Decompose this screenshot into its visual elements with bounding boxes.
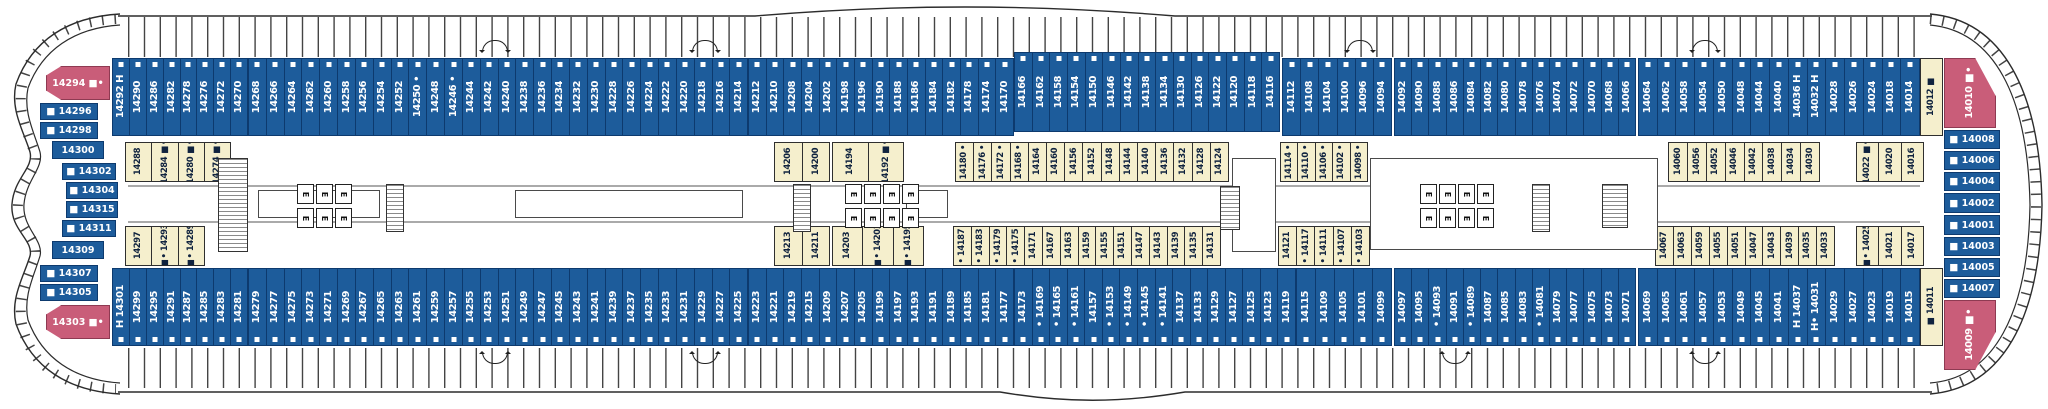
cabin-14238[interactable]: 14238 <box>516 58 534 136</box>
cabin-14273[interactable]: 14273 <box>302 268 320 346</box>
cabin-14007[interactable]: ■ 14007 <box>1944 279 2000 298</box>
cabin-14089[interactable]: • 14089 <box>1464 268 1481 346</box>
cabin-14106[interactable]: 14106 • <box>1316 142 1333 182</box>
cabin-14075[interactable]: 14075 <box>1584 268 1601 346</box>
cabin-14163[interactable]: 14163 <box>1061 226 1079 266</box>
cabin-14121[interactable]: 14121 <box>1278 226 1297 266</box>
cabin-14023[interactable]: 14023 <box>1864 268 1883 346</box>
cabin-14184[interactable]: 14184 <box>926 58 944 136</box>
cabin-14250[interactable]: 14250 • <box>409 58 427 136</box>
cabin-14030[interactable]: 14030 <box>1801 142 1820 182</box>
cabin-14241[interactable]: 14241 <box>588 268 606 346</box>
cabin-14016[interactable]: 14016 <box>1902 142 1924 182</box>
cabin-14001[interactable]: ■ 14001 <box>1944 215 2000 235</box>
cabin-14003[interactable]: ■ 14003 <box>1944 237 2000 256</box>
cabin-14045[interactable]: 14045 <box>1751 268 1770 346</box>
cabin-14034[interactable]: 14034 <box>1782 142 1801 182</box>
cabin-14234[interactable]: 14234 <box>552 58 570 136</box>
cabin-14093[interactable]: • 14093 <box>1429 268 1446 346</box>
cabin-14135[interactable]: 14135 <box>1185 226 1203 266</box>
cabin-14221[interactable]: 14221 <box>767 268 785 346</box>
cabin-14100[interactable]: 14100 <box>1338 58 1356 136</box>
cabin-14249[interactable]: 14249 <box>516 268 534 346</box>
cabin-14078[interactable]: 14078 <box>1516 58 1533 136</box>
cabin-14107[interactable]: • 14107 <box>1334 226 1352 266</box>
cabin-14063[interactable]: 14063 <box>1674 226 1692 266</box>
cabin-14259[interactable]: 14259 <box>427 268 445 346</box>
cabin-14240[interactable]: 14240 <box>499 58 517 136</box>
cabin-14288[interactable]: 14288 <box>125 142 152 182</box>
cabin-14188[interactable]: 14188 <box>890 58 908 136</box>
cabin-14026[interactable]: 14026 <box>1845 58 1864 136</box>
cabin-14299[interactable]: 14299 <box>130 268 147 346</box>
cabin-14099[interactable]: 14099 <box>1373 268 1392 346</box>
cabin-14265[interactable]: 14265 <box>374 268 392 346</box>
cabin-14261[interactable]: 14261 <box>409 268 427 346</box>
cabin-14002[interactable]: ■ 14002 <box>1944 193 2000 213</box>
cabin-14161[interactable]: • 14161 <box>1068 268 1086 346</box>
cabin-14162[interactable]: 14162 <box>1033 52 1051 132</box>
cabin-14270[interactable]: 14270 <box>231 58 248 136</box>
cabin-14137[interactable]: 14137 <box>1173 268 1191 346</box>
cabin-14223[interactable]: 14223 <box>748 268 767 346</box>
cabin-14285[interactable]: 14285 <box>197 268 214 346</box>
cabin-14213[interactable]: 14213 <box>774 226 803 266</box>
cabin-14095[interactable]: 14095 <box>1412 268 1429 346</box>
cabin-14085[interactable]: 14085 <box>1498 268 1515 346</box>
cabin-14145[interactable]: • 14145 <box>1138 268 1156 346</box>
cabin-14248[interactable]: 14248 <box>427 58 445 136</box>
cabin-14247[interactable]: 14247 <box>534 268 552 346</box>
cabin-14260[interactable]: 14260 <box>320 58 338 136</box>
cabin-14091[interactable]: 14091 <box>1447 268 1464 346</box>
cabin-14118[interactable]: 14118 <box>1245 52 1263 132</box>
cabin-14212[interactable]: 14212 <box>748 58 767 136</box>
cabin-14224[interactable]: 14224 <box>641 58 659 136</box>
cabin-14151[interactable]: 14151 <box>1114 226 1132 266</box>
cabin-14059[interactable]: 14059 <box>1692 226 1710 266</box>
cabin-14105[interactable]: 14105 <box>1335 268 1354 346</box>
cabin-14021[interactable]: 14021 <box>1879 226 1901 266</box>
cabin-14018[interactable]: 14018 <box>1883 58 1902 136</box>
cabin-14203[interactable]: 14203 <box>832 226 863 266</box>
cabin-14051[interactable]: 14051 <box>1728 226 1746 266</box>
cabin-14036[interactable]: 14036 H <box>1789 58 1808 136</box>
cabin-14077[interactable]: 14077 <box>1567 268 1584 346</box>
cabin-14039[interactable]: 14039 <box>1781 226 1799 266</box>
cabin-14276[interactable]: 14276 <box>197 58 214 136</box>
cabin-14267[interactable]: 14267 <box>356 268 374 346</box>
cabin-14229[interactable]: 14229 <box>695 268 713 346</box>
cabin-14197[interactable]: 14197 <box>890 268 908 346</box>
cabin-14286[interactable]: 14286 <box>147 58 164 136</box>
cabin-14275[interactable]: 14275 <box>285 268 303 346</box>
cabin-14112[interactable]: 14112 <box>1282 58 1301 136</box>
cabin-14303[interactable]: 14303 ■• <box>46 305 110 339</box>
cabin-14220[interactable]: 14220 <box>677 58 695 136</box>
cabin-14038[interactable]: 14038 <box>1763 142 1782 182</box>
cabin-14190[interactable]: 14190 <box>873 58 891 136</box>
cabin-14254[interactable]: 14254 <box>374 58 392 136</box>
cabin-14236[interactable]: 14236 <box>534 58 552 136</box>
cabin-14153[interactable]: • 14153 <box>1103 268 1121 346</box>
cabin-14186[interactable]: 14186 <box>908 58 926 136</box>
cabin-14131[interactable]: 14131 <box>1203 226 1221 266</box>
cabin-14114[interactable]: 14114 • <box>1280 142 1298 182</box>
cabin-14008[interactable]: ■ 14008 <box>1944 130 2000 149</box>
cabin-14315[interactable]: ■ 14315 <box>66 201 118 218</box>
cabin-14244[interactable]: 14244 <box>463 58 481 136</box>
cabin-14159[interactable]: 14159 <box>1079 226 1097 266</box>
cabin-14207[interactable]: 14207 <box>837 268 855 346</box>
cabin-14263[interactable]: 14263 <box>392 268 410 346</box>
cabin-14252[interactable]: 14252 <box>392 58 410 136</box>
cabin-14090[interactable]: 14090 <box>1412 58 1429 136</box>
cabin-14048[interactable]: 14048 <box>1733 58 1752 136</box>
cabin-14264[interactable]: 14264 <box>285 58 303 136</box>
cabin-14160[interactable]: 14160 <box>1047 142 1065 182</box>
cabin-14191[interactable]: 14191 <box>926 268 944 346</box>
cabin-14283[interactable]: 14283 <box>214 268 231 346</box>
cabin-14134[interactable]: 14134 <box>1156 52 1174 132</box>
cabin-14076[interactable]: 14076 <box>1533 58 1550 136</box>
cabin-14293[interactable]: ■• 14293 <box>152 226 178 266</box>
cabin-14049[interactable]: 14049 <box>1733 268 1752 346</box>
cabin-14083[interactable]: 14083 <box>1516 268 1533 346</box>
cabin-14139[interactable]: 14139 <box>1168 226 1186 266</box>
cabin-14012[interactable]: 14012 ■ <box>1920 58 1943 136</box>
cabin-14296[interactable]: ■ 14296 <box>40 103 98 120</box>
cabin-14219[interactable]: 14219 <box>784 268 802 346</box>
cabin-14143[interactable]: 14143 <box>1150 226 1168 266</box>
cabin-14061[interactable]: 14061 <box>1676 268 1695 346</box>
cabin-14060[interactable]: 14060 <box>1668 142 1688 182</box>
cabin-14176[interactable]: 14176 • <box>974 142 992 182</box>
cabin-14101[interactable]: 14101 <box>1354 268 1373 346</box>
cabin-14269[interactable]: 14269 <box>338 268 356 346</box>
cabin-14108[interactable]: 14108 <box>1301 58 1319 136</box>
cabin-14258[interactable]: 14258 <box>338 58 356 136</box>
cabin-14232[interactable]: 14232 <box>570 58 588 136</box>
cabin-14116[interactable]: 14116 <box>1262 52 1280 132</box>
cabin-14111[interactable]: • 14111 <box>1315 226 1333 266</box>
cabin-14123[interactable]: 14123 <box>1261 268 1279 346</box>
cabin-14158[interactable]: 14158 <box>1050 52 1068 132</box>
cabin-14225[interactable]: 14225 <box>730 268 748 346</box>
cabin-14117[interactable]: • 14117 <box>1297 226 1315 266</box>
cabin-14136[interactable]: 14136 <box>1156 142 1174 182</box>
cabin-14277[interactable]: 14277 <box>267 268 285 346</box>
cabin-14205[interactable]: 14205 <box>855 268 873 346</box>
cabin-14222[interactable]: 14222 <box>659 58 677 136</box>
cabin-14246[interactable]: 14246 • <box>445 58 463 136</box>
cabin-14280[interactable]: 14280 ■• <box>179 142 205 182</box>
cabin-14092[interactable]: 14092 <box>1394 58 1412 136</box>
cabin-14065[interactable]: 14065 <box>1658 268 1677 346</box>
cabin-14230[interactable]: 14230 <box>588 58 606 136</box>
cabin-14289[interactable]: ■• 14289 <box>179 226 205 266</box>
cabin-14130[interactable]: 14130 <box>1174 52 1192 132</box>
cabin-14257[interactable]: 14257 <box>445 268 463 346</box>
cabin-14047[interactable]: 14047 <box>1746 226 1764 266</box>
cabin-14133[interactable]: 14133 <box>1191 268 1209 346</box>
cabin-14125[interactable]: 14125 <box>1243 268 1261 346</box>
cabin-14035[interactable]: 14035 <box>1799 226 1817 266</box>
cabin-14200[interactable]: 14200 <box>803 142 831 182</box>
cabin-14235[interactable]: 14235 <box>641 268 659 346</box>
cabin-14152[interactable]: 14152 <box>1083 142 1101 182</box>
cabin-14126[interactable]: 14126 <box>1192 52 1210 132</box>
cabin-14120[interactable]: 14120 <box>1227 52 1245 132</box>
cabin-14098[interactable]: 14098 • <box>1351 142 1368 182</box>
cabin-14070[interactable]: 14070 <box>1584 58 1601 136</box>
cabin-14211[interactable]: 14211 <box>803 226 831 266</box>
cabin-14271[interactable]: 14271 <box>320 268 338 346</box>
cabin-14166[interactable]: 14166 <box>1014 52 1033 132</box>
cabin-14242[interactable]: 14242 <box>481 58 499 136</box>
cabin-14064[interactable]: 14064 <box>1638 58 1658 136</box>
cabin-14029[interactable]: 14029 <box>1826 268 1845 346</box>
cabin-14253[interactable]: 14253 <box>481 268 499 346</box>
cabin-14031[interactable]: H• 14031 <box>1808 268 1827 346</box>
cabin-14044[interactable]: 14044 <box>1751 58 1770 136</box>
cabin-14282[interactable]: 14282 <box>164 58 181 136</box>
cabin-14255[interactable]: 14255 <box>463 268 481 346</box>
cabin-14062[interactable]: 14062 <box>1658 58 1677 136</box>
cabin-14037[interactable]: H 14037 <box>1789 268 1808 346</box>
cabin-14080[interactable]: 14080 <box>1498 58 1515 136</box>
cabin-14055[interactable]: 14055 <box>1710 226 1728 266</box>
cabin-14167[interactable]: 14167 <box>1043 226 1061 266</box>
cabin-14017[interactable]: 14017 <box>1902 226 1924 266</box>
cabin-14192[interactable]: 14192 ■• <box>869 142 905 182</box>
cabin-14301[interactable]: H 14301 <box>112 268 130 346</box>
cabin-14201[interactable]: ■• 14201 <box>863 226 893 266</box>
cabin-14226[interactable]: 14226 <box>623 58 641 136</box>
cabin-14028[interactable]: 14028 <box>1826 58 1845 136</box>
cabin-14294[interactable]: 14294 ■• <box>46 66 110 100</box>
cabin-14291[interactable]: 14291 <box>164 268 181 346</box>
cabin-14215[interactable]: 14215 <box>802 268 820 346</box>
cabin-14104[interactable]: 14104 <box>1319 58 1337 136</box>
cabin-14103[interactable]: • 14103 <box>1352 226 1370 266</box>
cabin-14119[interactable]: 14119 <box>1278 268 1296 346</box>
cabin-14284[interactable]: 14284 ■• <box>152 142 178 182</box>
cabin-14216[interactable]: 14216 <box>713 58 731 136</box>
cabin-14206[interactable]: 14206 <box>774 142 803 182</box>
cabin-14172[interactable]: 14172 • <box>992 142 1010 182</box>
cabin-14218[interactable]: 14218 <box>695 58 713 136</box>
cabin-14084[interactable]: 14084 <box>1464 58 1481 136</box>
cabin-14278[interactable]: 14278 <box>181 58 198 136</box>
cabin-14054[interactable]: 14054 <box>1695 58 1714 136</box>
cabin-14032[interactable]: 14032 H <box>1808 58 1827 136</box>
cabin-14138[interactable]: 14138 <box>1139 52 1157 132</box>
cabin-14181[interactable]: 14181 <box>979 268 997 346</box>
cabin-14302[interactable]: ■ 14302 <box>62 163 116 180</box>
cabin-14102[interactable]: 14102 • <box>1333 142 1350 182</box>
cabin-14027[interactable]: 14027 <box>1845 268 1864 346</box>
cabin-14228[interactable]: 14228 <box>606 58 624 136</box>
cabin-14087[interactable]: 14087 <box>1481 268 1498 346</box>
cabin-14227[interactable]: 14227 <box>713 268 731 346</box>
cabin-14046[interactable]: 14046 <box>1726 142 1745 182</box>
cabin-14057[interactable]: 14057 <box>1695 268 1714 346</box>
cabin-14231[interactable]: 14231 <box>677 268 695 346</box>
cabin-14195[interactable]: ■• 14195 <box>894 226 924 266</box>
cabin-14043[interactable]: 14043 <box>1763 226 1781 266</box>
cabin-14173[interactable]: 14173 <box>1014 268 1033 346</box>
cabin-14266[interactable]: 14266 <box>267 58 285 136</box>
cabin-14279[interactable]: 14279 <box>248 268 267 346</box>
cabin-14297[interactable]: 14297 <box>125 226 152 266</box>
cabin-14144[interactable]: 14144 <box>1120 142 1138 182</box>
cabin-14245[interactable]: 14245 <box>552 268 570 346</box>
cabin-14071[interactable]: 14071 <box>1619 268 1636 346</box>
cabin-14178[interactable]: 14178 <box>961 58 979 136</box>
cabin-14298[interactable]: ■ 14298 <box>40 122 98 139</box>
cabin-14157[interactable]: 14157 <box>1085 268 1103 346</box>
cabin-14110[interactable]: 14110 • <box>1298 142 1315 182</box>
cabin-14237[interactable]: 14237 <box>623 268 641 346</box>
cabin-14019[interactable]: 14019 <box>1883 268 1902 346</box>
cabin-14015[interactable]: 14015 <box>1901 268 1920 346</box>
cabin-14154[interactable]: 14154 <box>1068 52 1086 132</box>
cabin-14256[interactable]: 14256 <box>356 58 374 136</box>
cabin-14305[interactable]: ■ 14305 <box>40 284 98 301</box>
cabin-14004[interactable]: ■ 14004 <box>1944 172 2000 191</box>
cabin-14287[interactable]: 14287 <box>181 268 198 346</box>
cabin-14096[interactable]: 14096 <box>1356 58 1374 136</box>
cabin-14210[interactable]: 14210 <box>767 58 785 136</box>
cabin-14115[interactable]: 14115 <box>1296 268 1316 346</box>
cabin-14169[interactable]: • 14169 <box>1033 268 1051 346</box>
cabin-14132[interactable]: 14132 <box>1174 142 1192 182</box>
cabin-14072[interactable]: 14072 <box>1567 58 1584 136</box>
cabin-14040[interactable]: 14040 <box>1770 58 1789 136</box>
cabin-14141[interactable]: • 14141 <box>1156 268 1174 346</box>
cabin-14155[interactable]: 14155 <box>1096 226 1114 266</box>
cabin-14082[interactable]: 14082 <box>1481 58 1498 136</box>
cabin-14041[interactable]: 14041 <box>1770 268 1789 346</box>
cabin-14262[interactable]: 14262 <box>302 58 320 136</box>
cabin-14086[interactable]: 14086 <box>1447 58 1464 136</box>
cabin-14149[interactable]: • 14149 <box>1120 268 1138 346</box>
cabin-14146[interactable]: 14146 <box>1103 52 1121 132</box>
cabin-14199[interactable]: 14199 <box>873 268 891 346</box>
cabin-14311[interactable]: ■ 14311 <box>62 220 116 237</box>
cabin-14175[interactable]: • 14175 <box>1007 226 1025 266</box>
cabin-14109[interactable]: 14109 <box>1316 268 1335 346</box>
cabin-14295[interactable]: 14295 <box>147 268 164 346</box>
cabin-14233[interactable]: 14233 <box>659 268 677 346</box>
cabin-14174[interactable]: 14174 <box>979 58 997 136</box>
cabin-14309[interactable]: 14309 <box>52 241 104 259</box>
cabin-14168[interactable]: 14168 • <box>1011 142 1029 182</box>
cabin-14088[interactable]: 14088 <box>1429 58 1446 136</box>
cabin-14164[interactable]: 14164 <box>1029 142 1047 182</box>
cabin-14185[interactable]: 14185 <box>961 268 979 346</box>
cabin-14165[interactable]: • 14165 <box>1050 268 1068 346</box>
cabin-14142[interactable]: 14142 <box>1121 52 1139 132</box>
cabin-14068[interactable]: 14068 <box>1602 58 1619 136</box>
cabin-14122[interactable]: 14122 <box>1209 52 1227 132</box>
cabin-14193[interactable]: 14193 <box>908 268 926 346</box>
cabin-14209[interactable]: 14209 <box>820 268 838 346</box>
cabin-14189[interactable]: 14189 <box>943 268 961 346</box>
cabin-14094[interactable]: 14094 <box>1374 58 1392 136</box>
cabin-14074[interactable]: 14074 <box>1550 58 1567 136</box>
cabin-14204[interactable]: 14204 <box>802 58 820 136</box>
cabin-14148[interactable]: 14148 <box>1102 142 1120 182</box>
cabin-14053[interactable]: 14053 <box>1714 268 1733 346</box>
cabin-14129[interactable]: 14129 <box>1208 268 1226 346</box>
cabin-14127[interactable]: 14127 <box>1226 268 1244 346</box>
cabin-14272[interactable]: 14272 <box>214 58 231 136</box>
cabin-14187[interactable]: • 14187 <box>953 226 972 266</box>
cabin-14214[interactable]: 14214 <box>730 58 748 136</box>
cabin-14194[interactable]: 14194 <box>832 142 869 182</box>
cabin-14066[interactable]: 14066 <box>1619 58 1636 136</box>
cabin-14170[interactable]: 14170 <box>996 58 1014 136</box>
cabin-14156[interactable]: 14156 <box>1065 142 1083 182</box>
cabin-14020[interactable]: 14020 <box>1879 142 1901 182</box>
cabin-14198[interactable]: 14198 <box>837 58 855 136</box>
cabin-14022[interactable]: 14022 ■• <box>1856 142 1879 182</box>
cabin-14202[interactable]: 14202 <box>820 58 838 136</box>
cabin-14006[interactable]: ■ 14006 <box>1944 151 2000 170</box>
cabin-14128[interactable]: 14128 <box>1193 142 1211 182</box>
cabin-14081[interactable]: • 14081 <box>1533 268 1550 346</box>
cabin-14056[interactable]: 14056 <box>1688 142 1707 182</box>
cabin-14073[interactable]: 14073 <box>1602 268 1619 346</box>
cabin-14304[interactable]: ■ 14304 <box>66 182 118 199</box>
cabin-14042[interactable]: 14042 <box>1745 142 1764 182</box>
cabin-14307[interactable]: ■ 14307 <box>40 265 98 282</box>
cabin-14182[interactable]: 14182 <box>943 58 961 136</box>
cabin-14025[interactable]: ■• 14025 <box>1856 226 1879 266</box>
cabin-14140[interactable]: 14140 <box>1138 142 1156 182</box>
cabin-14251[interactable]: 14251 <box>499 268 517 346</box>
cabin-14183[interactable]: • 14183 <box>972 226 990 266</box>
cabin-14079[interactable]: 14079 <box>1550 268 1567 346</box>
cabin-14208[interactable]: 14208 <box>784 58 802 136</box>
cabin-14180[interactable]: 14180 • <box>955 142 974 182</box>
cabin-14150[interactable]: 14150 <box>1086 52 1104 132</box>
cabin-14196[interactable]: 14196 <box>855 58 873 136</box>
cabin-14239[interactable]: 14239 <box>606 268 624 346</box>
cabin-14290[interactable]: 14290 <box>130 58 147 136</box>
cabin-14097[interactable]: 14097 <box>1394 268 1412 346</box>
cabin-14268[interactable]: 14268 <box>248 58 267 136</box>
cabin-14124[interactable]: 14124 <box>1211 142 1229 182</box>
cabin-14292[interactable]: 14292 H <box>112 58 130 136</box>
cabin-14281[interactable]: 14281 <box>231 268 248 346</box>
cabin-14171[interactable]: 14171 <box>1025 226 1043 266</box>
cabin-14050[interactable]: 14050 <box>1714 58 1733 136</box>
cabin-14243[interactable]: 14243 <box>570 268 588 346</box>
cabin-14052[interactable]: 14052 <box>1707 142 1726 182</box>
cabin-14300[interactable]: 14300 <box>52 141 104 159</box>
cabin-14011[interactable]: ■ 14011 <box>1920 268 1943 346</box>
cabin-14179[interactable]: • 14179 <box>990 226 1008 266</box>
cabin-14147[interactable]: 14147 <box>1132 226 1150 266</box>
cabin-14005[interactable]: ■ 14005 <box>1944 258 2000 277</box>
cabin-14024[interactable]: 14024 <box>1864 58 1883 136</box>
cabin-14014[interactable]: 14014 <box>1901 58 1920 136</box>
cabin-14058[interactable]: 14058 <box>1676 58 1695 136</box>
cabin-14069[interactable]: 14069 <box>1638 268 1658 346</box>
